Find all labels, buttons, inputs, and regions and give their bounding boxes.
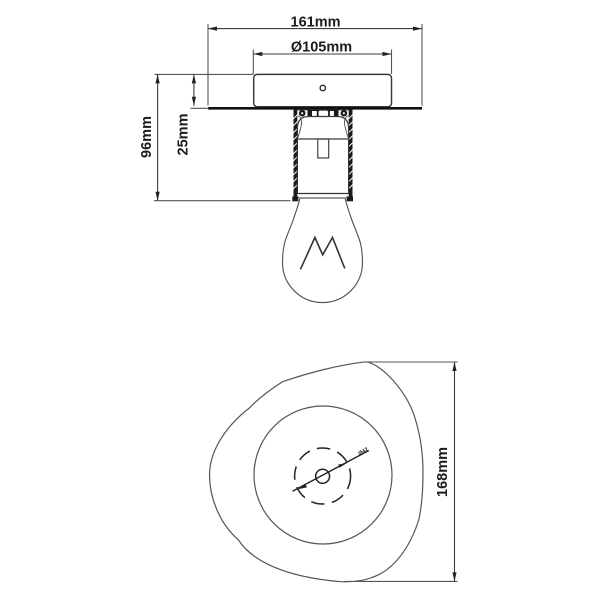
svg-text:168mm: 168mm — [435, 447, 451, 497]
svg-text:25mm: 25mm — [176, 114, 192, 156]
svg-text:Ø105mm: Ø105mm — [291, 40, 352, 56]
svg-text:Ø42: Ø42 — [358, 447, 370, 457]
svg-text:96mm: 96mm — [139, 116, 155, 158]
